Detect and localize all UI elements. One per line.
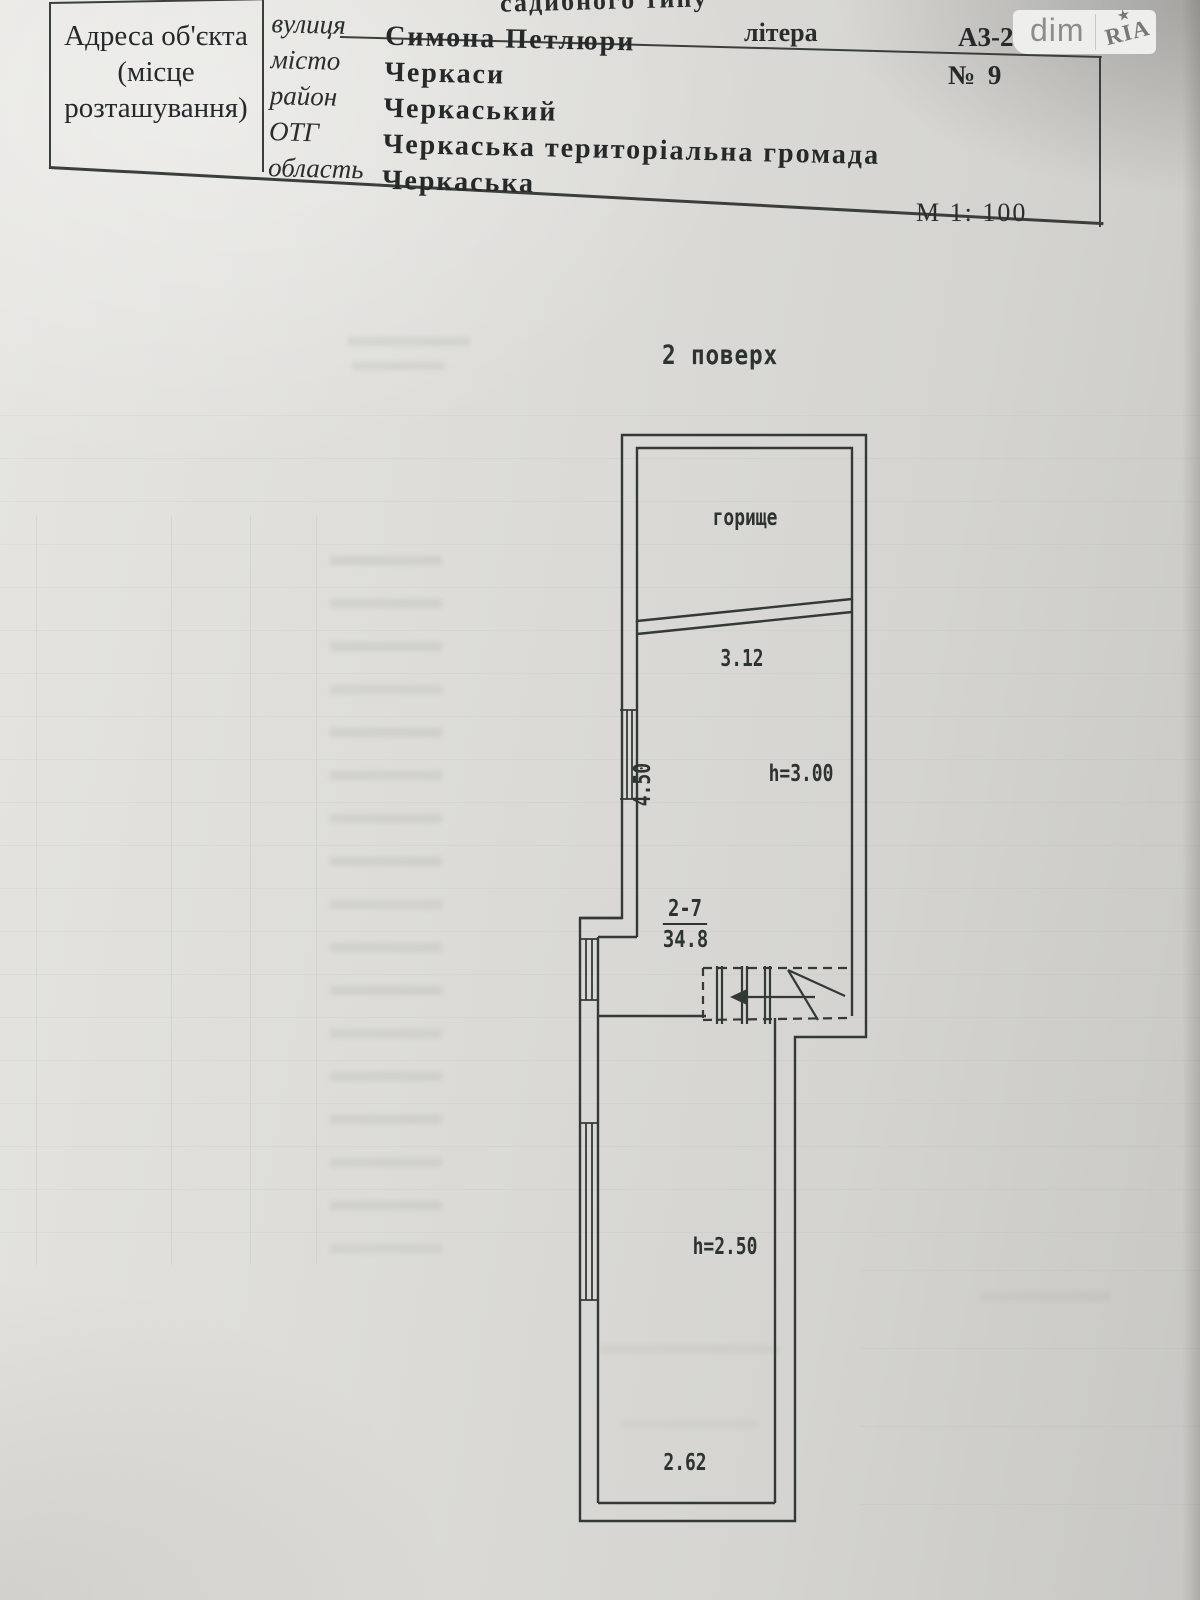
stairs-direction-arrow	[730, 989, 815, 1005]
attic-label: горище	[706, 505, 784, 531]
stair-winders	[788, 970, 845, 1020]
room-area: 34.8	[663, 925, 707, 953]
dimension-width-top: 3.12	[719, 646, 766, 672]
room-top-wall	[637, 612, 852, 634]
room-number: 2-7	[663, 896, 707, 925]
floor-plan-drawing	[0, 0, 1200, 1600]
floor-title: 2 поверх	[661, 340, 779, 371]
arrow-head	[730, 989, 747, 1005]
ceiling-height-mid: h=3.00	[766, 761, 836, 787]
window-symbol-lower	[580, 1123, 598, 1300]
dimension-side: 4.50	[630, 761, 656, 808]
window-symbols	[580, 710, 637, 1300]
window-symbol-middle	[580, 939, 598, 1000]
scanned-document-page: Адреса об'єкта (місце розташування) сади…	[0, 0, 1200, 1600]
page-edge-shadow	[1182, 0, 1200, 1600]
dimension-width-bottom: 2.62	[662, 1450, 709, 1476]
attic-room-wall	[637, 448, 852, 621]
room-number-area: 2-7 34.8	[663, 896, 707, 953]
stairs-symbol	[703, 966, 848, 1024]
ceiling-height-low: h=2.50	[690, 1234, 760, 1260]
